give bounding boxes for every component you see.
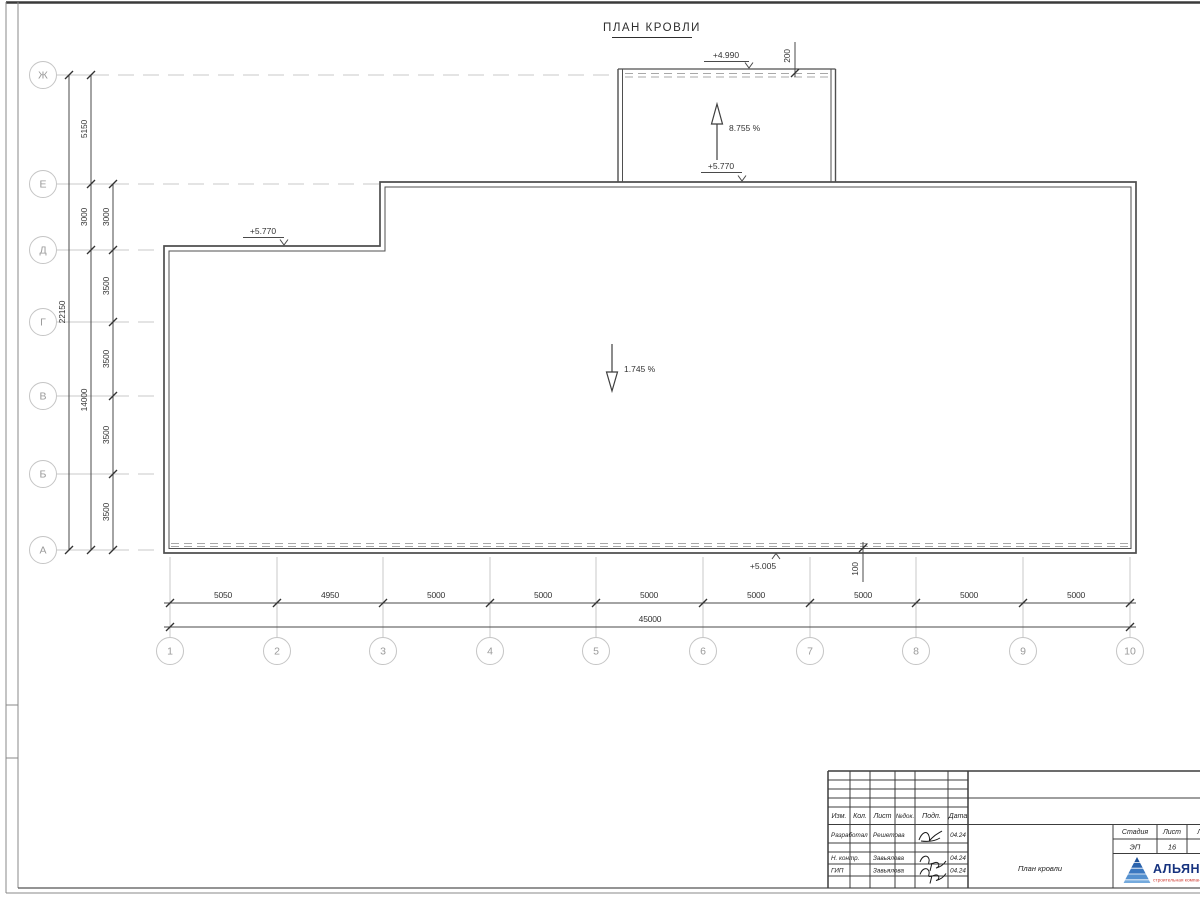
logo-company-name: АЛЬЯНС: [1153, 862, 1200, 876]
elevation-block-top: +4.990: [704, 50, 753, 68]
dim-label: 5150: [79, 119, 89, 138]
tb-role: ГИП: [831, 868, 844, 875]
drawing-title: ПЛАН КРОВЛИ: [603, 22, 701, 38]
dim-label-parapet-bottom: 100: [850, 562, 860, 576]
dim-label: 5000: [854, 590, 873, 600]
dim-label: 3500: [101, 349, 111, 368]
axis-row-label: В: [39, 391, 46, 403]
slope-label-roof: 1.745 %: [624, 364, 656, 374]
slope-arrow-roof: 1.745 %: [607, 344, 656, 391]
axis-col-label: 1: [167, 646, 173, 658]
axis-col-label: 7: [807, 646, 813, 658]
axis-row-label: Б: [40, 469, 47, 481]
dim-label: 5000: [640, 590, 659, 600]
tb-name: Завьялова: [873, 855, 905, 862]
axis-col-label: 9: [1020, 646, 1026, 658]
tb-stage-label: Стадия: [1122, 828, 1148, 836]
axis-col-label: 2: [274, 646, 280, 658]
tb-col-izm: Изм.: [832, 813, 847, 820]
axis-row-label: Е: [39, 179, 46, 191]
svg-text:+5.770: +5.770: [250, 226, 277, 236]
dim-label: 5050: [214, 590, 233, 600]
dim-label-bottom-total: 45000: [639, 614, 662, 624]
dim-label: 5000: [427, 590, 446, 600]
tb-col-ndok: №док.: [896, 812, 915, 820]
dim-label: 3500: [101, 276, 111, 295]
axis-row-label: Ж: [38, 70, 48, 82]
tb-name: Решетова: [873, 832, 905, 839]
axis-col-label: 5: [593, 646, 599, 658]
tb-name: Завьялова: [873, 868, 905, 875]
svg-text:+5.005: +5.005: [750, 561, 777, 571]
title-block: Изм. Кол. Лист №док. Подп. Дата Разработ…: [828, 771, 1200, 888]
axis-col-bubbles: 1 2 3 4 5 6 7 8 9 10: [157, 638, 1144, 665]
page-title: ПЛАН КРОВЛИ: [603, 22, 701, 34]
slope-label-block: 8.755 %: [729, 123, 761, 133]
tb-sheet-label: Лист: [1162, 829, 1181, 836]
dim-label: 5000: [1067, 590, 1086, 600]
grid-lines-cols: [170, 557, 1130, 644]
svg-text:+4.990: +4.990: [713, 50, 740, 60]
tb-date: 04.24: [950, 832, 966, 839]
elevation-roof-left: +5.770: [243, 226, 288, 245]
elevation-roof-bottom: +5.005: [741, 554, 787, 573]
axis-col-label: 4: [487, 646, 493, 658]
dim-label: 5000: [960, 590, 979, 600]
tb-date: 04.24: [950, 868, 966, 875]
axis-row-label: Д: [39, 245, 46, 257]
dim-label-parapet-top: 200: [782, 49, 792, 63]
tb-role: Разработал: [831, 831, 868, 839]
tb-role: Н. контр.: [831, 855, 859, 862]
dim-label: 4950: [321, 590, 340, 600]
tb-date: 04.24: [950, 855, 966, 862]
tb-col-list: Лист: [872, 813, 891, 820]
bottom-dimension-chains: 5050 4950 5000 5000 5000 5000 5000 5000 …: [164, 590, 1136, 631]
dim-label: 14000: [79, 388, 89, 411]
tb-col-podp: Подп.: [922, 812, 941, 820]
grid-lines-rows: [57, 75, 617, 550]
axis-col-label: 6: [700, 646, 706, 658]
sheet-frame: [6, 2, 1200, 893]
logo-pyramid-icon: [1134, 857, 1139, 862]
drawing-sheet: ПЛАН КРОВЛИ: [0, 0, 1200, 900]
dim-label-left-total: 22150: [57, 300, 67, 323]
axis-col-label: 10: [1124, 646, 1136, 658]
axis-row-label: А: [39, 545, 46, 557]
left-dimension-chains: 22150 5150 3000 14000 3000 3500 3500 350…: [57, 71, 117, 554]
axis-row-bubbles: Ж Е Д Г В Б А: [30, 62, 57, 564]
tb-sheet-value: 16: [1168, 843, 1177, 852]
tb-stage-value: ЭП: [1130, 843, 1141, 852]
company-logo: АЛЬЯНС строительная компания: [1124, 857, 1200, 884]
roof-plan-drawing: ПЛАН КРОВЛИ: [0, 0, 1200, 900]
dim-label: 5000: [534, 590, 553, 600]
tb-col-kol: Кол.: [853, 813, 867, 820]
logo-tagline: строительная компания: [1153, 879, 1200, 884]
axis-row-label: Г: [40, 317, 46, 329]
tb-doc-title: План кровли: [1018, 864, 1063, 873]
tb-sheets-label: Листов: [1196, 829, 1200, 836]
axis-col-label: 3: [380, 646, 386, 658]
tb-col-data: Дата: [948, 813, 968, 820]
axis-col-label: 8: [913, 646, 919, 658]
dim-label: 5000: [747, 590, 766, 600]
svg-text:+5.770: +5.770: [708, 161, 735, 171]
dim-label: 3000: [79, 207, 89, 226]
dim-label: 3500: [101, 425, 111, 444]
dim-label: 3500: [101, 502, 111, 521]
dim-label: 3000: [101, 207, 111, 226]
